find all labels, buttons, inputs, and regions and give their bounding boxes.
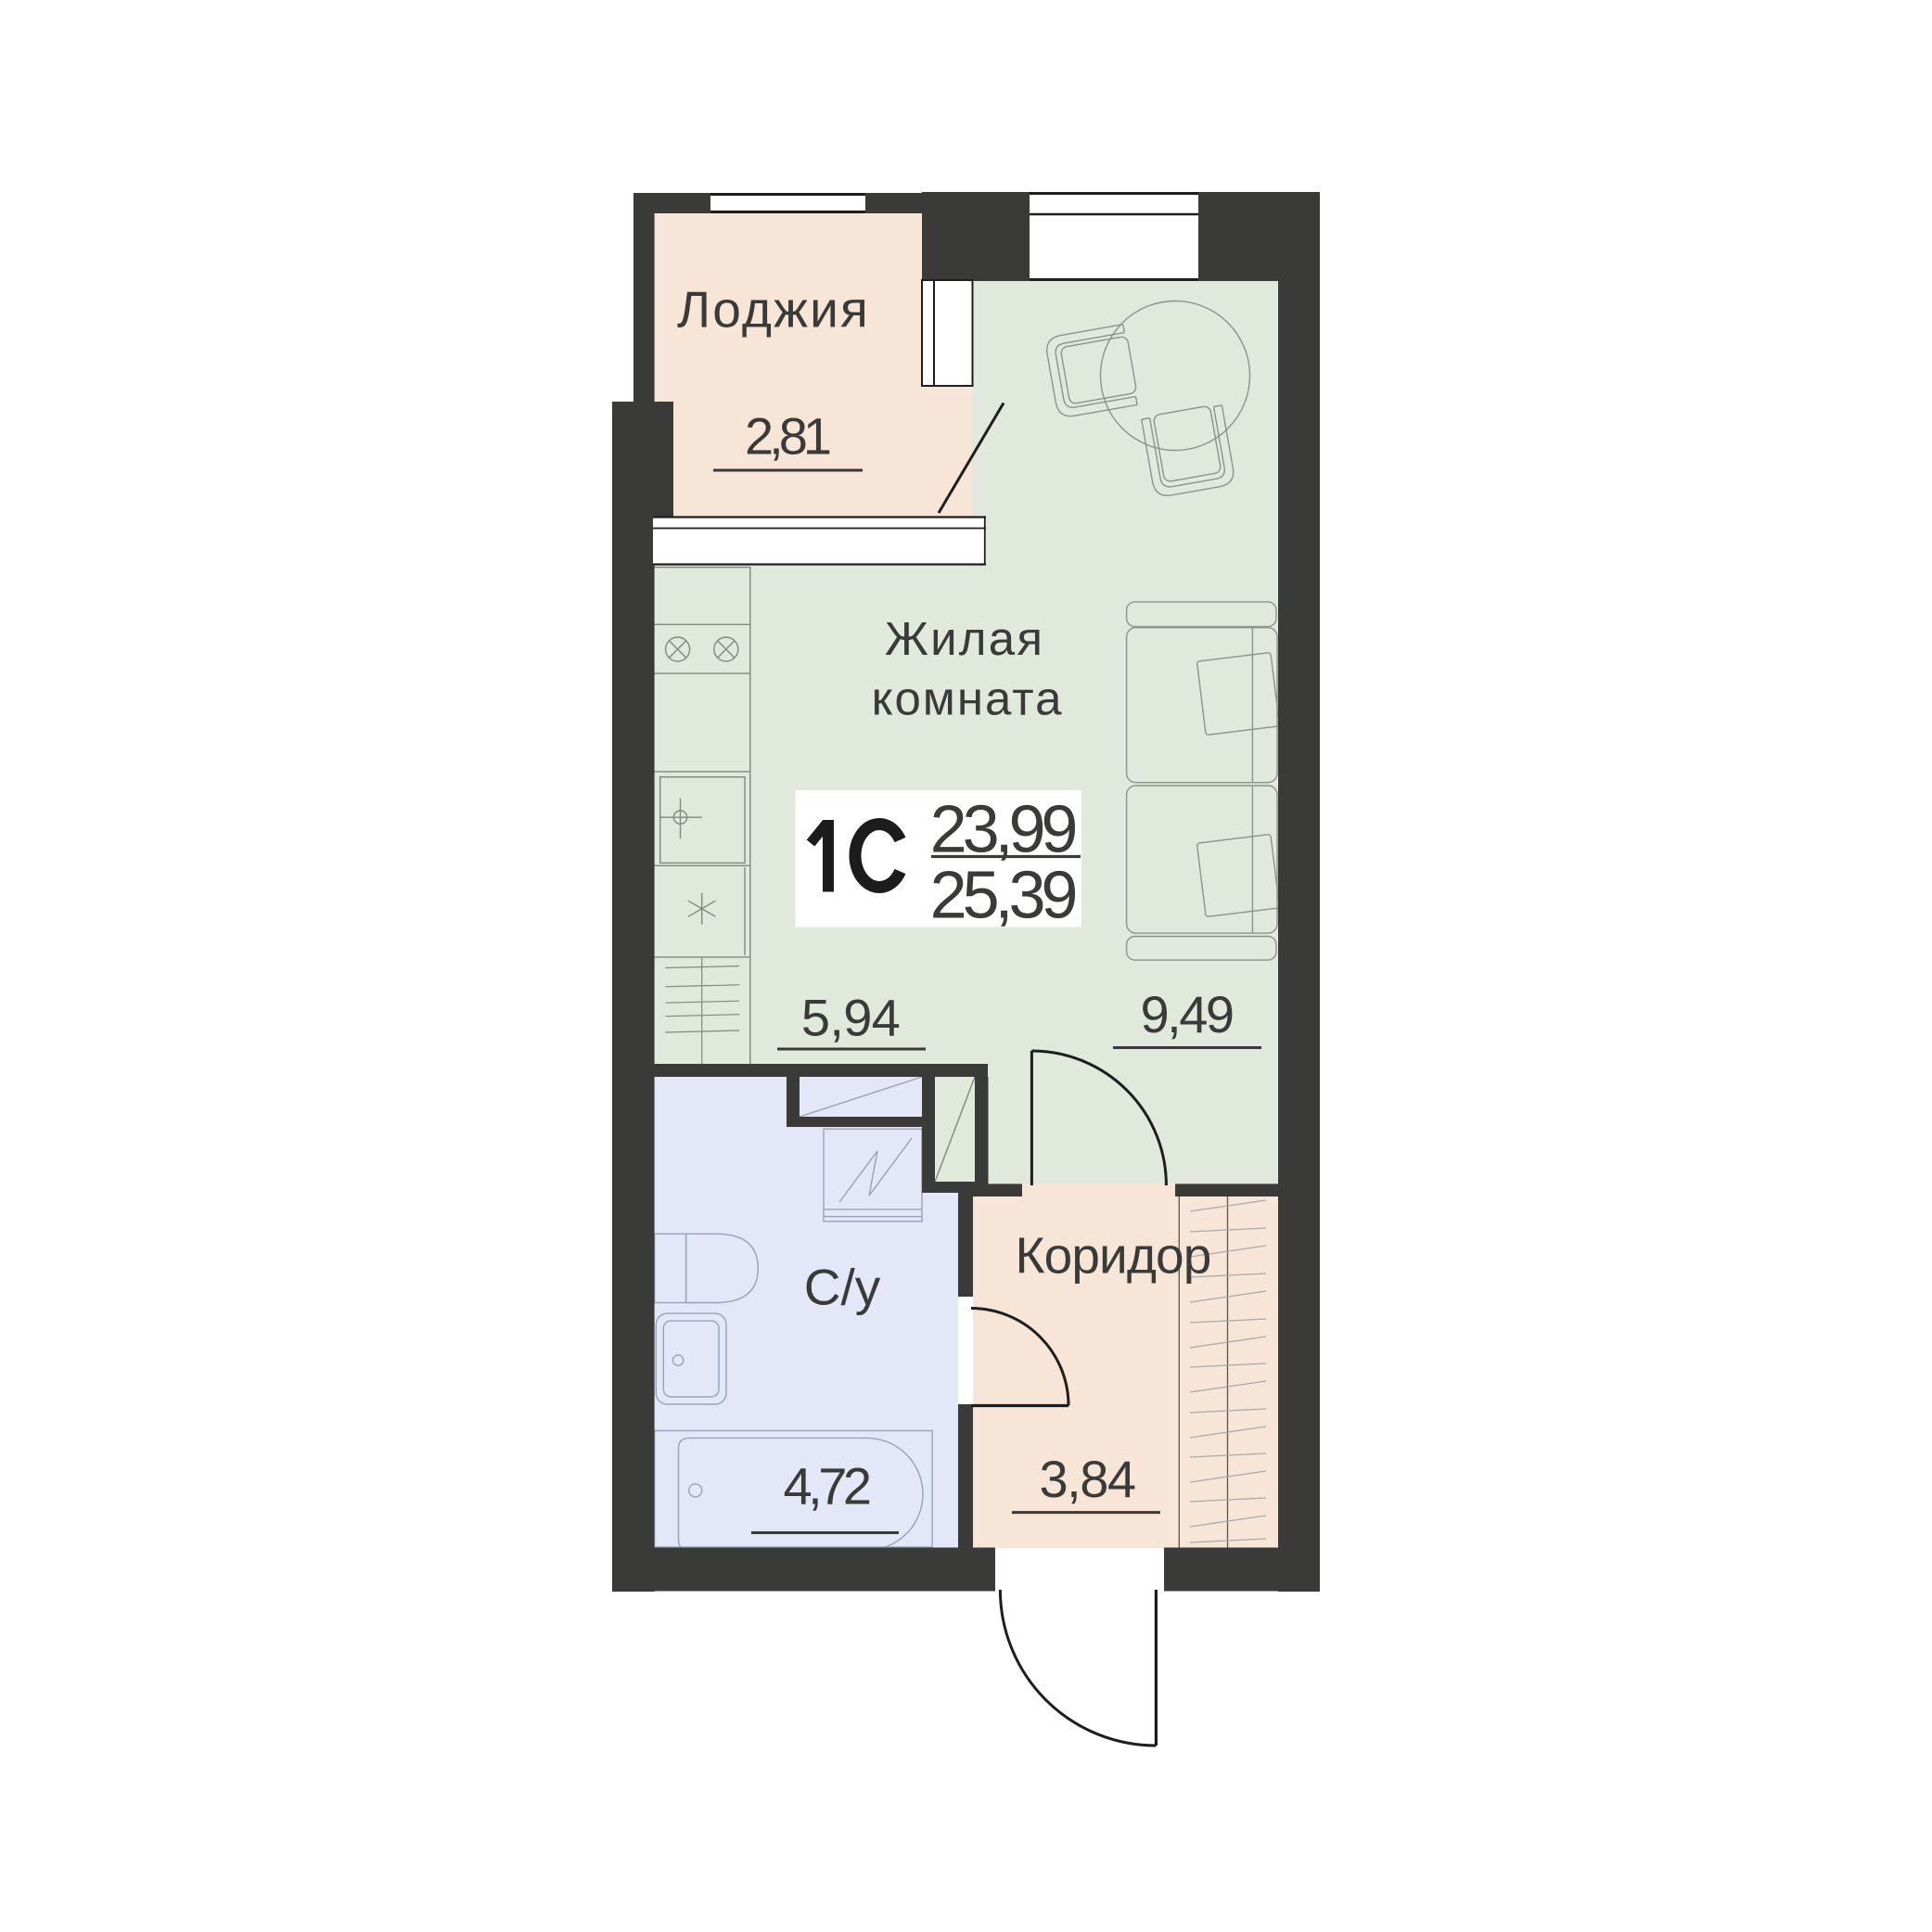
svg-text:Лоджия: Лоджия: [677, 281, 870, 339]
svg-text:4,72: 4,72: [784, 1457, 870, 1516]
svg-text:2,81: 2,81: [745, 407, 830, 466]
svg-text:Коридор: Коридор: [1016, 1227, 1211, 1285]
svg-text:С/у: С/у: [804, 1259, 881, 1316]
svg-text:25,39: 25,39: [930, 858, 1076, 932]
svg-text:комната: комната: [872, 672, 1064, 725]
svg-text:5,94: 5,94: [801, 988, 900, 1046]
svg-text:9,49: 9,49: [1141, 985, 1233, 1043]
svg-text:Жилая: Жилая: [885, 612, 1044, 665]
svg-text:3,84: 3,84: [1040, 1450, 1135, 1508]
